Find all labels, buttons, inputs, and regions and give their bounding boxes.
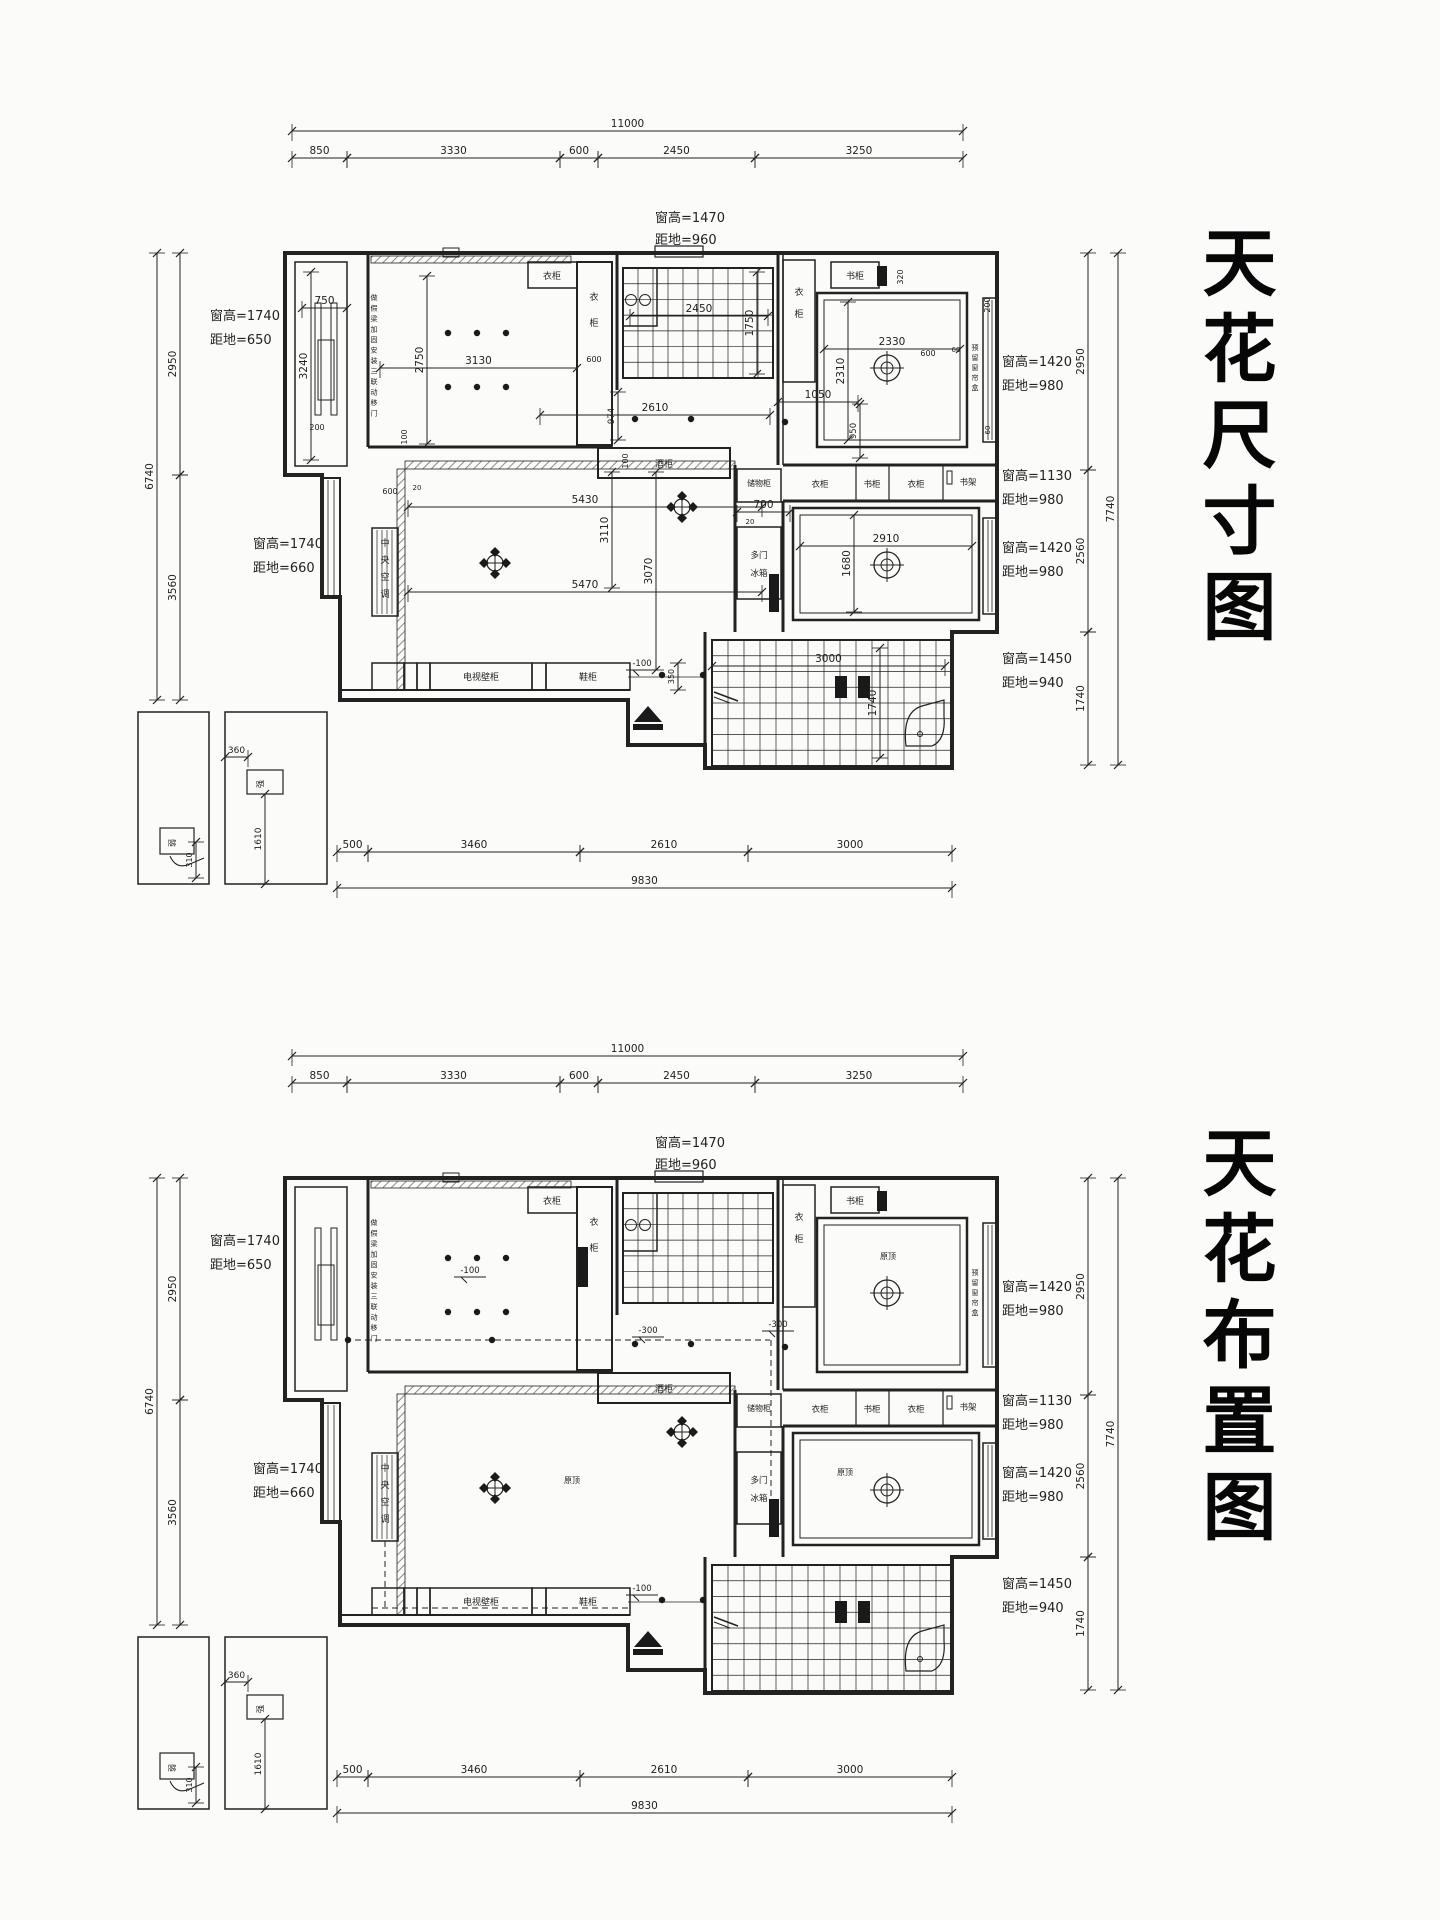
balcony-sliding-door	[318, 1265, 334, 1325]
dim-label: 9830	[631, 875, 658, 887]
label: 窗高=1740	[210, 308, 280, 324]
ceiling-border	[793, 1433, 979, 1545]
dimension: 3110	[599, 468, 620, 592]
dim-label: 750	[314, 295, 334, 307]
dim-label: 1750	[744, 310, 756, 337]
downlight-symbol	[700, 672, 706, 678]
vent	[835, 1601, 847, 1623]
label: 多门	[750, 1475, 767, 1486]
dim-label: 2450	[663, 1070, 690, 1082]
dim-label: 2310	[835, 358, 847, 385]
window-strip	[983, 298, 997, 442]
dim-label: 2950	[1075, 1273, 1087, 1300]
rect	[633, 724, 663, 730]
dim-label: 360	[228, 1671, 245, 1681]
downlight-symbol	[445, 1309, 451, 1315]
downlight-symbol	[445, 384, 451, 390]
dim-label: 3000	[837, 839, 864, 851]
level-label: -100	[632, 1584, 651, 1594]
downlight-symbol	[688, 416, 694, 422]
label: 窗高=1450	[1002, 651, 1072, 667]
dim-label: 2560	[1075, 1463, 1087, 1490]
dimension: 2450	[594, 145, 759, 168]
label: 书柜	[846, 270, 864, 282]
plan-line	[714, 692, 738, 701]
dim-label: 3240	[298, 353, 310, 380]
label: 20	[746, 518, 755, 526]
label: 窗高=1450	[1002, 1576, 1072, 1592]
grille	[769, 574, 779, 612]
label: 窗高=1130	[1002, 468, 1072, 484]
detail-box	[138, 712, 209, 884]
dim-label: 1610	[254, 827, 264, 850]
wardrobe	[783, 1185, 815, 1307]
plan-rect	[532, 663, 546, 690]
level-label: -100	[632, 659, 651, 669]
dimension: 2560	[1075, 1391, 1096, 1561]
downlight-symbol	[659, 1597, 665, 1603]
label: 鞋柜	[579, 1596, 597, 1608]
ceiling-lamp-symbol	[870, 1276, 904, 1310]
downlight-symbol	[503, 330, 509, 336]
dimension: 2560	[1075, 466, 1096, 636]
dim-label: 500	[342, 1764, 362, 1776]
path	[634, 1631, 662, 1647]
downlight-symbol	[445, 1255, 451, 1261]
label: 窗高=1740	[253, 536, 323, 552]
title-ceiling-dimension-plan: 天花尺寸图	[1196, 224, 1270, 654]
line	[769, 1331, 775, 1337]
label: 600	[382, 487, 397, 496]
dim-label: 2950	[1075, 348, 1087, 375]
dim-label: 974	[607, 408, 617, 424]
label-vertical: 做假梁加固安装三联动移门	[371, 293, 378, 418]
window-strip	[983, 1443, 997, 1539]
path	[634, 706, 662, 722]
dimension: 9830	[333, 1800, 956, 1823]
plan-rect	[417, 663, 430, 690]
downlight-symbol	[503, 1309, 509, 1315]
label: 距地=980	[1002, 565, 1064, 580]
vent	[858, 1601, 870, 1623]
label-vertical: 衣柜	[589, 1216, 598, 1254]
dim-label: 2450	[663, 145, 690, 157]
dim-label: 2610	[651, 839, 678, 851]
dim-label: 6740	[144, 463, 156, 490]
dimension: 500	[333, 1764, 372, 1787]
label: 酒柜	[655, 458, 673, 470]
path	[905, 1625, 944, 1671]
dimension: 2750	[414, 272, 435, 448]
path	[905, 700, 944, 746]
ceiling-border	[793, 508, 979, 620]
dim-label: 2610	[642, 402, 669, 414]
ceiling-border	[800, 1440, 972, 1538]
downlight-symbol	[489, 1337, 495, 1343]
dim-label: 11000	[611, 118, 644, 130]
ceiling-border	[817, 1218, 967, 1372]
ceiling-lamp-symbol	[870, 351, 904, 385]
downlight-symbol	[345, 1337, 351, 1343]
label: 600	[920, 349, 935, 358]
label: 距地=980	[1002, 493, 1064, 508]
dim-label: 2450	[686, 303, 713, 315]
plan-rect	[404, 1588, 417, 1615]
dim-label: 2950	[167, 351, 179, 378]
dimension: 2950	[1075, 249, 1096, 474]
dim-label: 5430	[572, 494, 599, 506]
plan-rect	[947, 471, 952, 484]
label: 衣柜	[543, 1195, 561, 1207]
downlight-symbol	[632, 1341, 638, 1347]
dimension: 750	[298, 295, 351, 318]
toilet-symbol	[905, 1625, 944, 1671]
window-strip	[983, 518, 997, 614]
ceiling-lamp-symbol	[870, 548, 904, 582]
dimension: 3460	[364, 839, 584, 862]
dim-label: 600	[569, 1070, 589, 1082]
downlight-symbol	[445, 330, 451, 336]
plan-rect	[417, 1588, 430, 1615]
label: 书架	[959, 477, 977, 488]
label: 距地=650	[210, 1258, 272, 1273]
label: 窗高=1420	[1002, 1279, 1072, 1295]
dimension: 3330	[343, 145, 564, 168]
dim-label: 3460	[461, 1764, 488, 1776]
label: 窗高=1470	[655, 1135, 725, 1151]
label: 距地=960	[655, 233, 717, 248]
label: 窗高=1470	[655, 210, 725, 226]
dim-label: 1740	[867, 690, 879, 717]
dim-label: 3250	[846, 1070, 873, 1082]
dim-label: 3250	[846, 145, 873, 157]
dimension: 3000	[744, 839, 956, 862]
dim-label: 5470	[572, 579, 599, 591]
dimension: 2950	[167, 1174, 188, 1404]
ceiling-lamp-symbol	[870, 1473, 904, 1507]
label: 冰箱	[750, 1493, 768, 1504]
entry-arrow-icon	[633, 1631, 663, 1655]
dimension: 2450	[594, 1070, 759, 1093]
rect	[633, 1649, 663, 1655]
dim-label: 2330	[879, 336, 906, 348]
dim-label: 1740	[1075, 685, 1087, 712]
dimension: 350	[667, 659, 686, 694]
dim-label: 2910	[873, 533, 900, 545]
label: 距地=940	[1002, 1601, 1064, 1616]
label: 书柜	[863, 479, 881, 490]
ceiling-dimension-plan: 衣柜衣柜衣柜书柜预留窗帘盒衣柜书柜衣柜书架储物柜多门冰箱电视壁柜鞋柜中央空调做假…	[138, 118, 1126, 898]
downlight-symbol	[688, 1341, 694, 1347]
label: 距地=650	[210, 333, 272, 348]
downlight-symbol	[659, 672, 665, 678]
dimension: 11000	[288, 118, 967, 141]
dimension: 2610	[536, 402, 774, 425]
downlight-symbol	[782, 419, 788, 425]
dim-label: 2560	[1075, 538, 1087, 565]
dim-label: 1740	[1075, 1610, 1087, 1637]
dimension: 600	[556, 145, 602, 168]
dimension: 11000	[288, 1043, 967, 1066]
label: 距地=980	[1002, 1490, 1064, 1505]
label: 衣柜	[811, 479, 829, 490]
level-mark: -100	[626, 1584, 658, 1601]
label: 距地=980	[1002, 1304, 1064, 1319]
dimension: 850	[288, 145, 351, 168]
plan-rect	[247, 1695, 283, 1719]
chandelier-symbol	[479, 1472, 511, 1504]
plan-rect	[160, 1753, 194, 1779]
dim-label: 1680	[841, 550, 853, 577]
downlight-symbol	[503, 1255, 509, 1261]
label-vertical: 做假梁加固安装三联动移门	[371, 1218, 378, 1343]
label: 窗高=1420	[1002, 354, 1072, 370]
dim-label: 500	[342, 839, 362, 851]
downlight-symbol	[474, 330, 480, 336]
dimension: 6740	[144, 249, 165, 704]
dimension: 1740	[1075, 1553, 1096, 1694]
plan-rect	[947, 1396, 952, 1409]
dim-label: 360	[228, 746, 245, 756]
label: 储物柜	[747, 478, 771, 488]
dimension: 2310	[835, 298, 856, 444]
label: 距地=660	[253, 561, 315, 576]
dim-label: 7740	[1105, 1421, 1117, 1448]
grille	[877, 266, 887, 286]
label: 距地=960	[655, 1158, 717, 1173]
label: 多门	[750, 550, 767, 561]
label: 窗高=1420	[1002, 540, 1072, 556]
dimension: 3000	[744, 1764, 956, 1787]
dim-label: 3130	[465, 355, 492, 367]
label: 书柜	[846, 1195, 864, 1207]
label: 60	[952, 346, 961, 354]
label: 电视壁柜	[463, 671, 499, 683]
label: 窗高=1740	[210, 1233, 280, 1249]
dimension: 3250	[751, 145, 967, 168]
line	[461, 1277, 467, 1283]
label-vertical: 预留窗帘盒	[972, 1268, 979, 1317]
ceiling-border	[800, 515, 972, 613]
dim-label: 3330	[440, 145, 467, 157]
label: 窗高=1420	[1002, 1465, 1072, 1481]
dimension: 7740	[1105, 249, 1126, 769]
label: 衣柜	[543, 270, 561, 282]
downlight-symbol	[474, 384, 480, 390]
downlight-symbol	[632, 416, 638, 422]
circle	[626, 295, 637, 306]
line	[633, 1595, 639, 1601]
dimension: 950	[849, 400, 868, 462]
dim-label: 2610	[651, 1764, 678, 1776]
label: 原顶	[837, 1468, 853, 1477]
label: 书柜	[863, 1404, 881, 1415]
dimension: 5470	[404, 579, 766, 602]
dim-label: 6740	[144, 1388, 156, 1415]
level-label: -300	[768, 1320, 787, 1330]
level-label: -300	[638, 1326, 657, 1336]
dim-label: 2950	[167, 1276, 179, 1303]
downlight-symbol	[700, 1597, 706, 1603]
window-strip	[322, 1403, 340, 1522]
dim-label: 600	[569, 145, 589, 157]
detail-box	[225, 712, 327, 884]
ceiling-layout-plan: 衣柜衣柜衣柜书柜预留窗帘盒衣柜书柜衣柜书架储物柜多门冰箱电视壁柜鞋柜中央空调做假…	[138, 1043, 1126, 1823]
dim-label: 350	[667, 669, 676, 684]
dimension: 1740	[1075, 628, 1096, 769]
dimension: 2950	[167, 249, 188, 479]
label: 60	[984, 426, 992, 435]
label: 20	[413, 484, 422, 492]
downlight-symbol	[474, 1255, 480, 1261]
circle	[626, 1220, 637, 1231]
dimension: 5430	[404, 494, 766, 517]
label: 200	[309, 423, 324, 432]
dimension: 1610	[254, 790, 273, 888]
detail-box	[138, 1637, 209, 1809]
hatched-wall	[405, 461, 735, 469]
circle	[640, 295, 651, 306]
label-vertical: 衣柜	[589, 291, 598, 329]
label: 弱	[168, 839, 177, 847]
dimension: 600	[556, 1070, 602, 1093]
label-vertical: 衣柜	[794, 286, 803, 320]
label: 600	[586, 355, 601, 364]
dimension: 1750	[744, 268, 765, 378]
level-label: -100	[460, 1266, 479, 1276]
dimension: 3460	[364, 1764, 584, 1787]
dimension: 3560	[167, 471, 188, 704]
toilet-symbol	[905, 700, 944, 746]
window-strip	[322, 478, 340, 597]
dimension: 3130	[376, 355, 581, 378]
label: 电视壁柜	[463, 1596, 499, 1608]
dimension: 2950	[1075, 1174, 1096, 1399]
title-ceiling-layout-plan: 天花布置图	[1196, 1124, 1270, 1554]
dim-label: 2750	[414, 347, 426, 374]
label: 酒柜	[655, 1383, 673, 1395]
vent	[835, 676, 847, 698]
dimension: 2610	[576, 1764, 752, 1787]
dim-label: 3070	[643, 558, 655, 585]
dimension: 1680	[841, 511, 862, 616]
downlight-symbol	[474, 1309, 480, 1315]
dim-label: 3460	[461, 839, 488, 851]
downlight-symbol	[782, 1344, 788, 1350]
dimension: 9830	[333, 875, 956, 898]
dimension: 500	[333, 839, 372, 862]
dim-label: 3560	[167, 1499, 179, 1526]
label: 衣柜	[907, 1404, 925, 1415]
downlight-symbol	[503, 384, 509, 390]
grille	[578, 1247, 588, 1287]
label: 窗高=1130	[1002, 1393, 1072, 1409]
dimension: 3560	[167, 1396, 188, 1629]
label: 距地=980	[1002, 1418, 1064, 1433]
plan-rect	[404, 663, 417, 690]
label: 原顶	[564, 1476, 580, 1485]
label-vertical: 衣柜	[794, 1211, 803, 1245]
blueprint-page: 衣柜衣柜衣柜书柜预留窗帘盒衣柜书柜衣柜书架储物柜多门冰箱电视壁柜鞋柜中央空调做假…	[0, 0, 1440, 1920]
chandelier-symbol	[666, 1416, 698, 1448]
plan-rect	[247, 770, 283, 794]
label: 距地=660	[253, 1486, 315, 1501]
label: 冰箱	[750, 568, 768, 579]
entry-arrow-icon	[633, 706, 663, 730]
grille	[769, 1499, 779, 1537]
plan-rect	[160, 828, 194, 854]
dimension: 974	[607, 388, 626, 444]
dimension: 3330	[343, 1070, 564, 1093]
plan-rect	[532, 1588, 546, 1615]
ceiling-border	[824, 1225, 960, 1365]
dimension: 2610	[576, 839, 752, 862]
label: 弱	[168, 1764, 177, 1772]
dim-label: 1610	[254, 1752, 264, 1775]
label: 强	[256, 1705, 265, 1713]
label: 100	[621, 453, 630, 468]
wardrobe	[783, 260, 815, 382]
detail-box	[225, 1637, 327, 1809]
label: 原顶	[880, 1252, 896, 1261]
label: 窗高=1740	[253, 1461, 323, 1477]
grille	[877, 1191, 887, 1211]
dim-label: 3330	[440, 1070, 467, 1082]
circle	[640, 1220, 651, 1231]
hatched-wall	[405, 1386, 735, 1394]
level-mark: -100	[454, 1266, 486, 1283]
dim-label: 3000	[837, 1764, 864, 1776]
label: 衣柜	[811, 1404, 829, 1415]
plan-line	[714, 1617, 738, 1626]
dimension: 6740	[144, 1174, 165, 1629]
label: 衣柜	[907, 479, 925, 490]
label: 鞋柜	[579, 671, 597, 683]
dimension: 850	[288, 1070, 351, 1093]
dimension: 1610	[254, 1715, 273, 1813]
dim-label: 850	[309, 1070, 329, 1082]
dim-label: 11000	[611, 1043, 644, 1055]
label: 100	[400, 429, 409, 444]
dimension: 3070	[643, 468, 664, 674]
label: 距地=940	[1002, 676, 1064, 691]
label-vertical: 预留窗帘盒	[972, 343, 979, 392]
dim-label: 850	[309, 145, 329, 157]
balcony-sliding-door	[318, 340, 334, 400]
label: 320	[896, 269, 905, 284]
dim-label: 7740	[1105, 496, 1117, 523]
line	[633, 670, 639, 676]
label: 强	[256, 780, 265, 788]
label: 200	[983, 297, 992, 312]
dim-label: 1050	[805, 389, 832, 401]
chandelier-symbol	[479, 547, 511, 579]
dim-label: 3000	[815, 653, 842, 665]
dim-label: 3560	[167, 574, 179, 601]
label: 书架	[959, 1402, 977, 1413]
label: 距地=980	[1002, 379, 1064, 394]
dimension: 3250	[751, 1070, 967, 1093]
window-strip	[983, 1223, 997, 1367]
label: 储物柜	[747, 1403, 771, 1413]
dim-label: 3110	[599, 517, 611, 544]
dim-label: 9830	[631, 1800, 658, 1812]
dimension: 7740	[1105, 1174, 1126, 1694]
